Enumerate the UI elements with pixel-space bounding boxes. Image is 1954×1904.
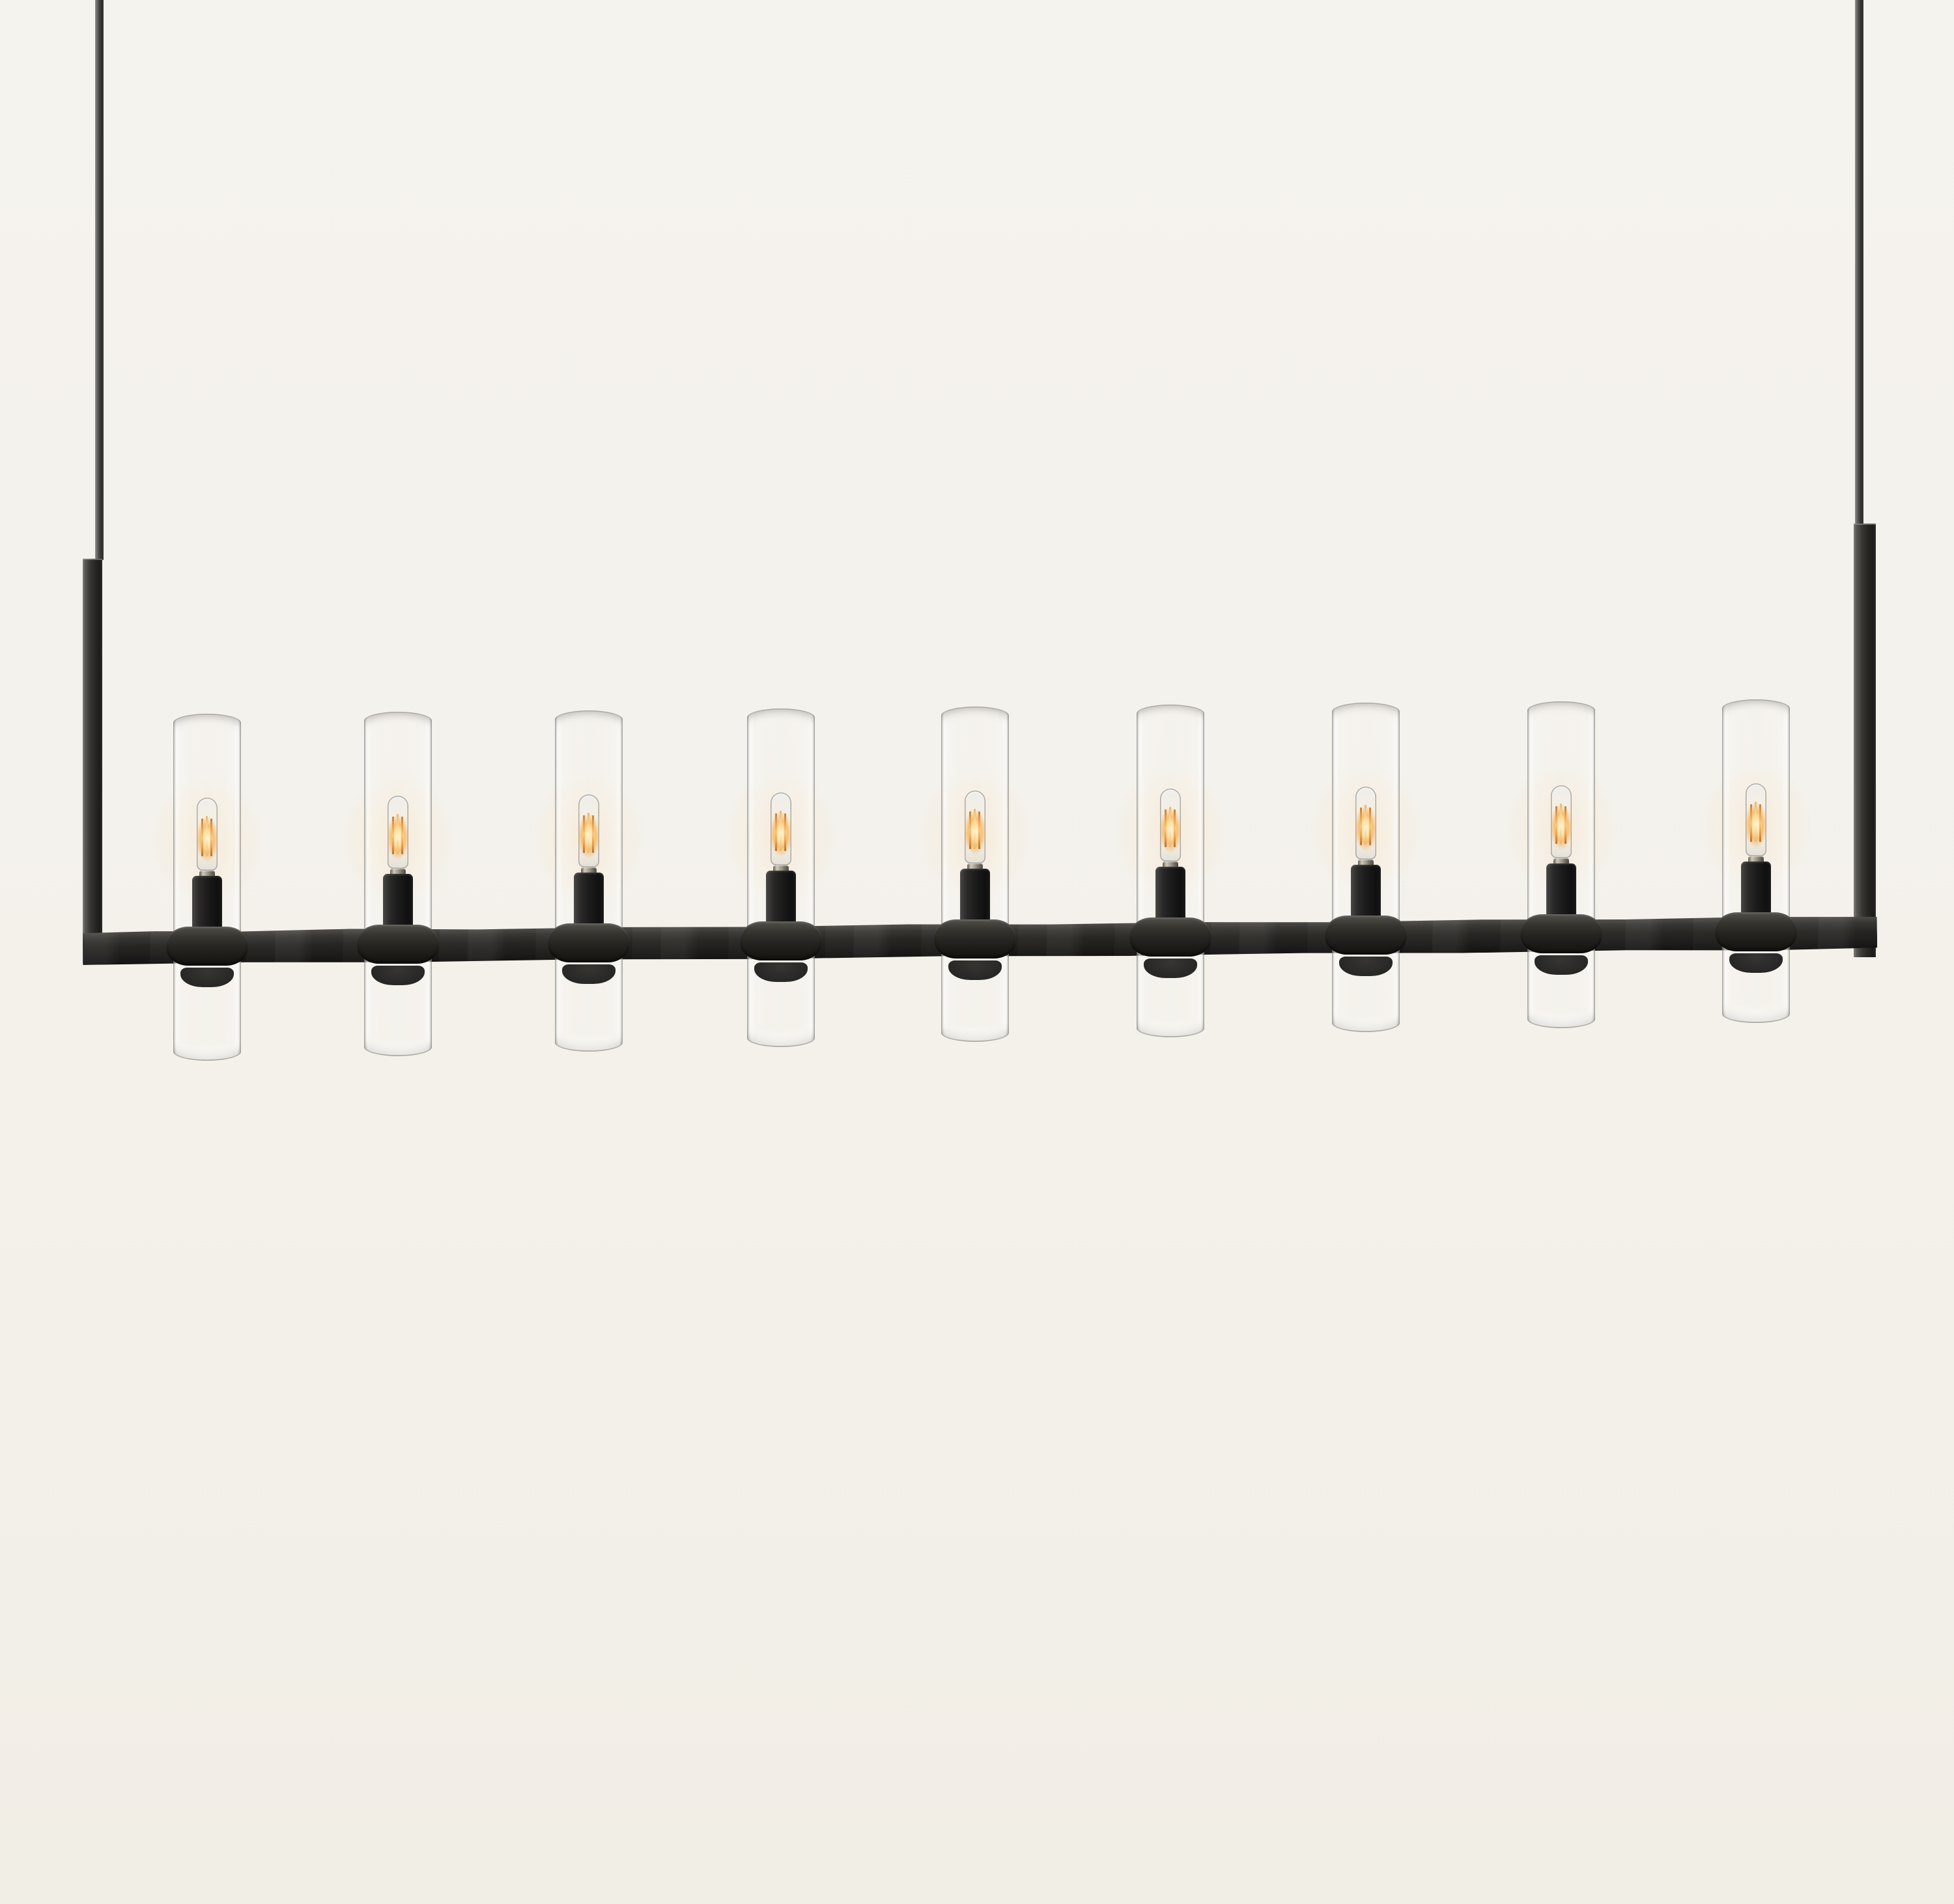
shade-strap bbox=[740, 921, 822, 960]
shade-strap bbox=[357, 925, 439, 964]
bulb-filament bbox=[1759, 804, 1761, 842]
product-photo bbox=[0, 0, 1954, 1904]
bulb-filament bbox=[1169, 807, 1171, 847]
shade-strap bbox=[548, 923, 630, 962]
drop-rod-left bbox=[95, 0, 104, 560]
candle-socket bbox=[192, 876, 222, 934]
bulb-filament bbox=[978, 811, 980, 849]
bulb-filament bbox=[592, 815, 594, 853]
bulb-filament bbox=[784, 813, 786, 851]
frame-arm-right bbox=[1854, 524, 1876, 957]
shade-strap bbox=[1129, 917, 1211, 957]
bulb-filament bbox=[1555, 806, 1557, 844]
shade-strap bbox=[1715, 912, 1797, 951]
bulb-filament bbox=[1360, 807, 1362, 845]
bulb-filament bbox=[1369, 807, 1371, 845]
candle-socket bbox=[574, 873, 604, 931]
bulb-filament bbox=[974, 809, 976, 849]
bulb-filament bbox=[588, 813, 589, 853]
bulb-filament bbox=[1174, 809, 1176, 847]
bulb-filament bbox=[1755, 802, 1757, 842]
bulb-filament bbox=[775, 813, 777, 851]
bulb-filament bbox=[583, 815, 585, 853]
bulb-filament bbox=[201, 819, 203, 856]
bulb-filament bbox=[397, 814, 399, 854]
bulb-filament bbox=[1165, 809, 1167, 847]
candle-socket bbox=[383, 874, 413, 932]
shade-strap bbox=[1325, 916, 1407, 955]
candle-socket bbox=[1155, 867, 1185, 925]
frame-arm-left bbox=[83, 559, 102, 964]
bulb-filament bbox=[206, 816, 208, 856]
shade-strap bbox=[166, 927, 248, 966]
bulb-filament bbox=[1365, 805, 1366, 845]
bulb-filament bbox=[1565, 806, 1566, 844]
shade-strap bbox=[1520, 914, 1602, 953]
bulb-filament bbox=[392, 817, 394, 854]
candle-socket bbox=[1741, 861, 1771, 920]
bulb-filament bbox=[210, 819, 212, 856]
bulb-filament bbox=[1750, 804, 1752, 842]
shade-strap bbox=[934, 919, 1016, 959]
bulb-filament bbox=[401, 817, 403, 854]
bulb-filament bbox=[969, 811, 971, 849]
candle-socket bbox=[1546, 863, 1576, 922]
drop-rod-right bbox=[1855, 0, 1863, 525]
bulb-filament bbox=[780, 811, 782, 851]
bulb-filament bbox=[1560, 804, 1562, 844]
candle-socket bbox=[960, 869, 990, 927]
candle-socket bbox=[1351, 865, 1381, 923]
candle-socket bbox=[766, 871, 796, 929]
